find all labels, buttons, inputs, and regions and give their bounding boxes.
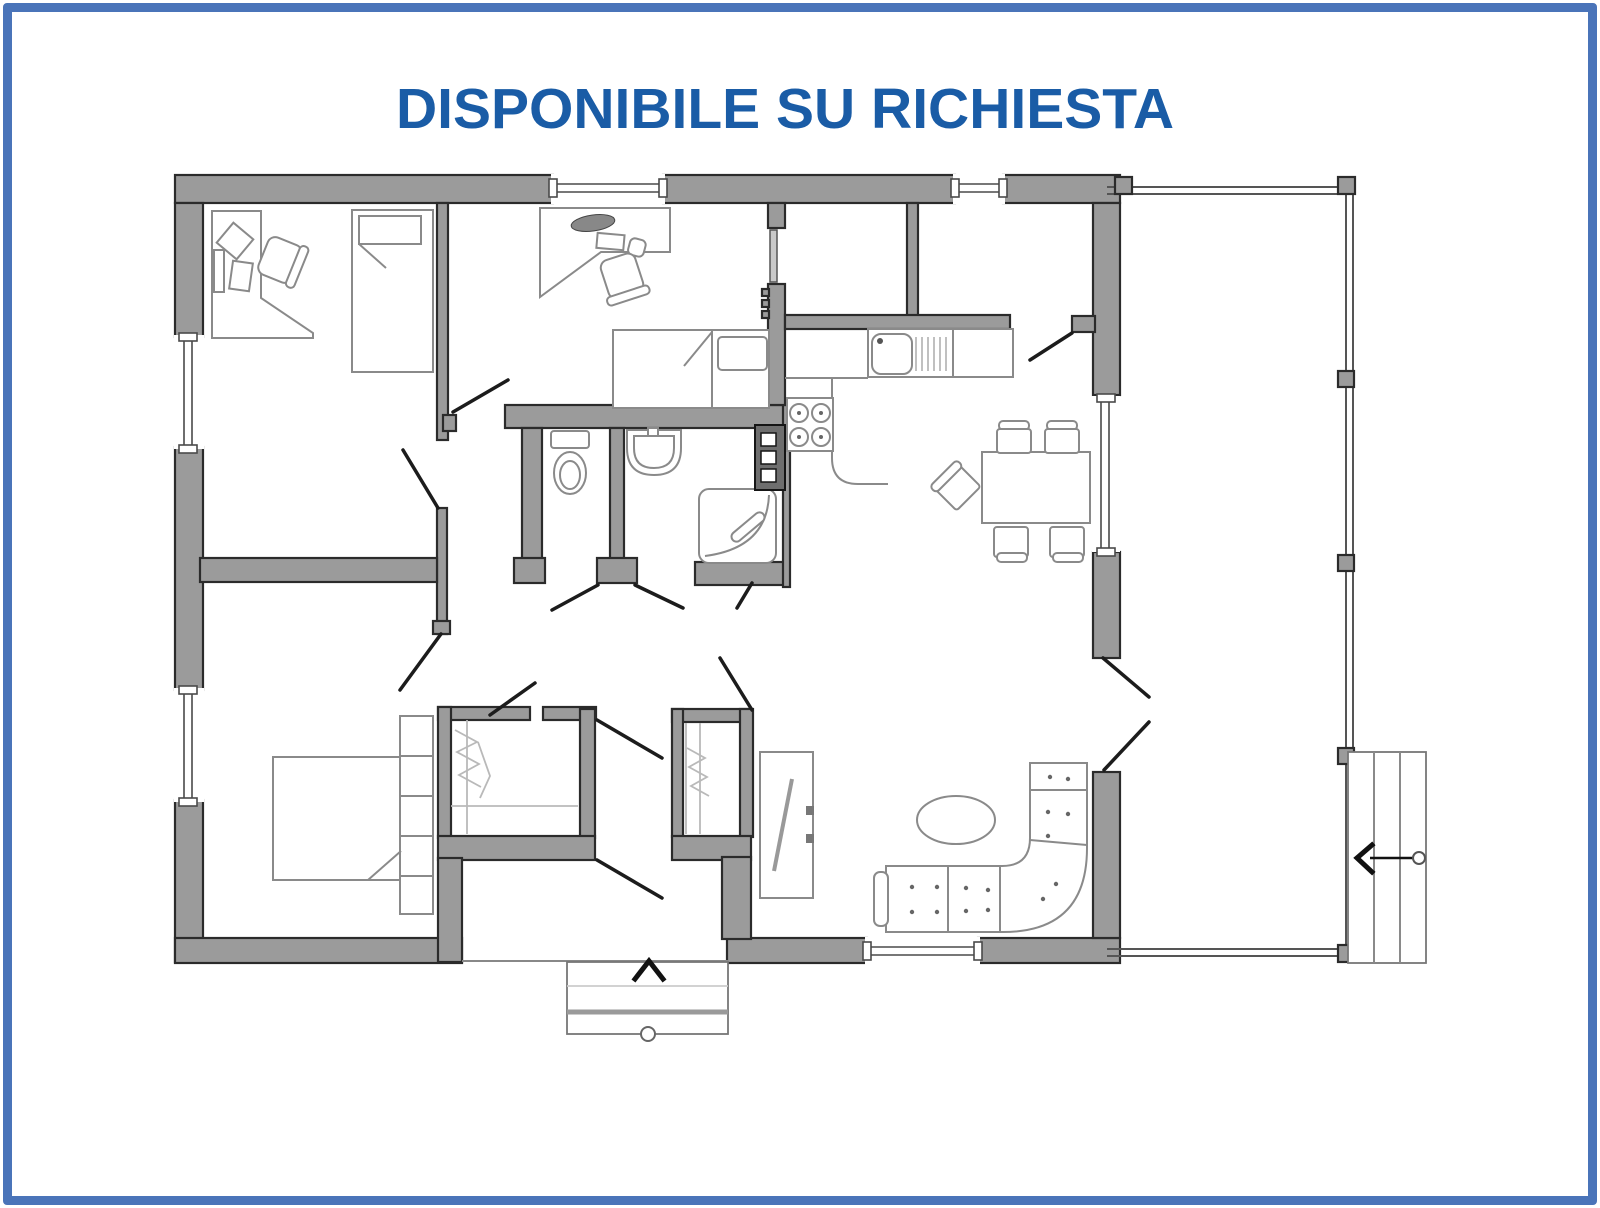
corner-sofa — [886, 763, 1087, 932]
double-bed — [273, 757, 402, 880]
door-porch-leaf-2 — [1104, 722, 1149, 770]
door-bathroom — [635, 585, 683, 608]
tv-cabinet — [760, 752, 813, 898]
door-kitchen — [737, 583, 752, 608]
wardrobe-left — [451, 720, 578, 834]
keyboard — [596, 233, 624, 250]
door-passage — [597, 720, 662, 758]
door-entry — [597, 860, 662, 898]
side-stairs — [1348, 752, 1426, 963]
master-bedroom — [273, 716, 433, 914]
keyboard — [229, 261, 253, 292]
chair — [997, 421, 1031, 453]
door-wc — [552, 585, 598, 610]
chair — [1050, 527, 1084, 562]
pillow — [718, 337, 767, 370]
desk-shelf — [214, 250, 224, 292]
floor-plan — [0, 0, 1600, 1208]
porch-post — [1338, 555, 1354, 571]
chair — [930, 460, 982, 512]
coffee-table — [917, 796, 995, 844]
counter-edge — [832, 378, 888, 484]
window-right — [1092, 394, 1120, 556]
chair — [1045, 421, 1079, 453]
window-left-2 — [174, 686, 204, 806]
porch — [1107, 177, 1355, 962]
door-bedroom-middle — [453, 380, 508, 412]
hanging-clothes — [455, 730, 481, 787]
window-left-1 — [174, 333, 204, 453]
door-living-room — [720, 658, 752, 710]
shower-tray — [699, 489, 776, 563]
office-chair — [255, 233, 309, 289]
window-top-1 — [549, 174, 667, 204]
window-bottom-slider — [863, 937, 982, 965]
tv-knob — [806, 806, 814, 815]
pillow — [359, 216, 421, 244]
porch-post — [1338, 177, 1355, 194]
porch-post — [1338, 371, 1354, 387]
dining-table — [982, 452, 1090, 523]
faucet — [877, 338, 883, 344]
wc — [551, 431, 589, 494]
living-room — [760, 752, 1087, 932]
porch-post — [1115, 177, 1132, 194]
hanging-clothes — [478, 742, 490, 798]
toilet-tank — [551, 431, 589, 448]
appliance-column — [755, 425, 785, 490]
faucet — [648, 428, 658, 436]
window-top-2 — [951, 174, 1007, 204]
door-porch-leaf-1 — [1103, 658, 1149, 697]
sofa-armrest — [874, 872, 888, 926]
door-master-bedroom — [400, 634, 441, 690]
bedroom-top-middle — [540, 208, 769, 408]
office-chair — [595, 250, 651, 306]
hanging-clothes — [687, 748, 709, 796]
bedroom-top-left — [212, 210, 433, 372]
kitchen — [785, 329, 1013, 484]
door-bedroom-left — [403, 450, 438, 508]
chair — [994, 527, 1028, 562]
entry-stairs — [462, 961, 728, 1041]
bathroom — [627, 428, 776, 563]
tv-knob — [806, 834, 814, 843]
headboard-cabinets — [400, 716, 433, 914]
door-pantry — [1030, 333, 1072, 360]
wardrobe-right — [686, 723, 709, 834]
dining-area — [930, 421, 1090, 562]
toilet-bowl — [554, 452, 586, 494]
